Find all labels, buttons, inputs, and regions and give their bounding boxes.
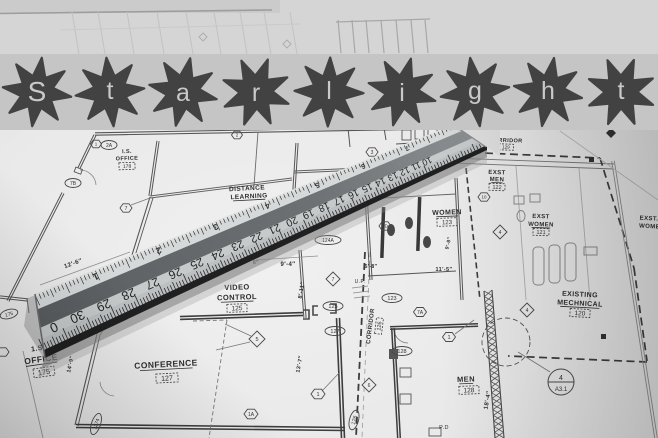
svg-text:a: a bbox=[176, 79, 190, 107]
svg-text:g: g bbox=[468, 77, 482, 105]
svg-text:t: t bbox=[618, 77, 625, 105]
svg-text:128: 128 bbox=[397, 349, 406, 355]
svg-text:7: 7 bbox=[332, 277, 335, 283]
svg-text:t: t bbox=[107, 77, 114, 105]
svg-text:7A: 7A bbox=[417, 310, 424, 316]
svg-text:U.P.: U.P. bbox=[355, 279, 366, 285]
svg-text:r: r bbox=[252, 79, 260, 107]
svg-text:6: 6 bbox=[368, 383, 371, 389]
svg-text:3: 3 bbox=[371, 150, 374, 156]
svg-text:l: l bbox=[326, 77, 332, 105]
svg-text:123: 123 bbox=[387, 296, 396, 302]
svg-text:127: 127 bbox=[330, 329, 339, 335]
svg-text:S: S bbox=[28, 76, 47, 107]
svg-text:126: 126 bbox=[376, 321, 383, 331]
svg-text:1D: 1D bbox=[382, 224, 389, 229]
svg-text:5′-8″: 5′-8″ bbox=[365, 264, 378, 270]
svg-text:i: i bbox=[399, 79, 405, 107]
svg-text:h: h bbox=[541, 77, 555, 105]
